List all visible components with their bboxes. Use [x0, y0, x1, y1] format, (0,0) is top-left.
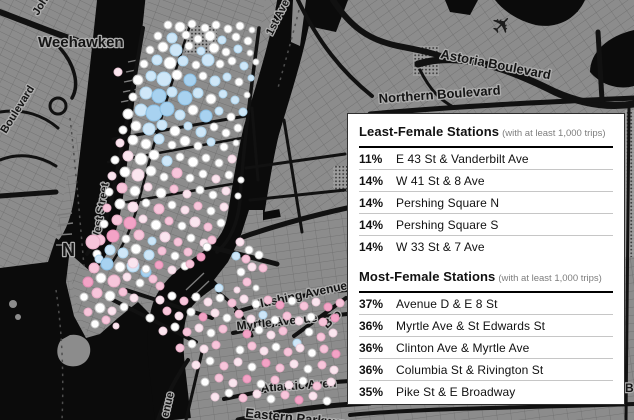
station-pct: 37%	[359, 297, 396, 311]
station-dot	[290, 360, 298, 368]
section-subtitle: (with at least 1,000 trips)	[502, 128, 606, 139]
station-dot	[152, 55, 162, 65]
station-dot	[248, 75, 254, 81]
station-dot	[222, 48, 230, 56]
station-dot	[199, 72, 207, 80]
station-dot	[86, 235, 100, 249]
station-dot	[323, 397, 331, 405]
station-dot	[211, 309, 219, 317]
station-dot	[223, 73, 231, 81]
station-dot	[232, 252, 240, 260]
station-dot	[139, 215, 147, 223]
station-row: 14%Pershing Square N	[359, 191, 613, 213]
station-dot	[215, 374, 223, 382]
station-dot	[154, 204, 164, 214]
station-dot	[186, 260, 194, 268]
station-dot	[201, 378, 209, 386]
station-dot	[249, 27, 255, 33]
station-dot	[176, 344, 184, 352]
station-dot	[220, 203, 228, 211]
station-dot	[234, 124, 242, 132]
station-dot	[146, 46, 154, 54]
station-name: Pershing Square N	[396, 196, 613, 210]
station-row: 14%W 33 St & 7 Ave	[359, 235, 613, 257]
station-dot	[211, 393, 219, 401]
station-dot	[168, 292, 176, 300]
station-dot	[318, 361, 326, 369]
station-dot	[199, 170, 207, 178]
station-dot	[148, 237, 156, 245]
station-dot	[307, 313, 315, 321]
station-dot	[168, 201, 176, 209]
station-row: 35%Pike St & E Broadway	[359, 380, 613, 402]
station-dot	[228, 57, 236, 65]
station-dot	[252, 300, 260, 308]
station-dot	[194, 202, 202, 210]
station-dot	[237, 268, 245, 276]
station-dot	[229, 379, 237, 387]
station-dot	[288, 297, 296, 305]
station-row: 36%Columbia St & Rivington St	[359, 358, 613, 380]
station-dot	[216, 60, 224, 68]
panel-section-0: Least-Female Stations(with at least 1,00…	[348, 114, 624, 259]
station-dot	[95, 303, 105, 313]
station-dot	[175, 312, 183, 320]
station-name: E 43 St & Vanderbilt Ave	[396, 152, 613, 166]
station-dot	[84, 308, 92, 316]
station-dot	[149, 275, 157, 283]
station-dot	[244, 37, 252, 45]
station-dot	[212, 21, 220, 29]
station-pct: 14%	[359, 240, 396, 254]
station-dot	[236, 22, 244, 30]
station-dot	[128, 258, 138, 268]
station-rows: 11%E 43 St & Vanderbilt Ave14%W 41 St & …	[359, 148, 613, 257]
station-dot	[247, 50, 253, 56]
station-dot	[159, 327, 167, 335]
station-dot	[295, 317, 303, 325]
station-name: W 41 St & 8 Ave	[396, 174, 613, 188]
station-dot	[204, 298, 212, 306]
station-dot	[181, 206, 189, 214]
station-dot	[118, 248, 128, 258]
station-dot	[299, 377, 307, 385]
station-dot	[255, 326, 263, 334]
station-pct: 14%	[359, 196, 396, 210]
station-dot	[164, 57, 176, 69]
station-dot	[225, 171, 233, 179]
map-label: Weehawken	[38, 34, 124, 51]
station-dot	[185, 42, 193, 50]
station-dot	[207, 138, 215, 146]
station-dot	[192, 61, 200, 69]
station-dot	[116, 139, 124, 147]
station-dot	[204, 223, 212, 231]
station-dot	[220, 362, 228, 370]
station-dot	[114, 68, 122, 76]
station-dot	[175, 110, 185, 120]
station-dot	[264, 296, 272, 304]
station-dot	[140, 87, 152, 99]
station-dot	[197, 253, 205, 261]
station-dot	[96, 273, 106, 283]
station-dot	[217, 219, 225, 227]
station-pct: 35%	[359, 385, 396, 399]
station-dot	[201, 24, 209, 32]
station-dot	[271, 376, 279, 384]
station-dot	[123, 151, 133, 161]
station-dot	[330, 366, 338, 374]
station-pct: 36%	[359, 341, 396, 355]
station-dot	[304, 365, 312, 373]
section-header: Most-Female Stations(with at least 1,000…	[359, 268, 613, 293]
station-pct: 14%	[359, 174, 396, 188]
station-dot	[205, 31, 215, 41]
station-dot	[320, 345, 328, 353]
station-dot	[107, 230, 119, 242]
station-dot	[174, 238, 182, 246]
station-dot	[228, 155, 236, 163]
station-dot	[105, 188, 113, 196]
station-dot	[149, 150, 159, 160]
station-dot	[236, 346, 244, 354]
station-dot	[119, 288, 127, 296]
station-dot	[276, 364, 284, 372]
station-dot	[178, 91, 192, 105]
station-dot	[144, 183, 152, 191]
station-dot	[83, 277, 93, 287]
station-dot	[122, 235, 130, 243]
station-dot	[209, 43, 219, 53]
station-dot	[182, 31, 190, 39]
station-dot	[188, 340, 196, 348]
station-dot	[219, 90, 227, 98]
station-dot	[146, 314, 154, 322]
station-dot	[279, 327, 287, 335]
station-dot	[331, 314, 339, 322]
station-dot	[188, 157, 198, 167]
stations-panel: Least-Female Stations(with at least 1,00…	[347, 113, 625, 405]
station-dot	[168, 266, 176, 274]
station-dot	[210, 123, 218, 131]
station-dot	[146, 105, 162, 121]
station-dot	[231, 96, 239, 104]
map-label: B	[625, 381, 634, 395]
station-dot	[296, 344, 304, 352]
station-dot	[91, 320, 99, 328]
station-dot	[247, 315, 255, 323]
station-dot	[160, 173, 168, 181]
station-dot	[285, 381, 293, 389]
station-dot	[215, 159, 223, 167]
station-dot	[113, 323, 119, 329]
station-dot	[130, 186, 140, 196]
station-dot	[154, 134, 164, 144]
station-dot	[220, 143, 228, 151]
station-name: Clinton Ave & Myrtle Ave	[396, 341, 613, 355]
station-dot	[242, 255, 250, 263]
station-dot	[212, 341, 220, 349]
station-dot	[203, 243, 211, 251]
station-dot	[259, 311, 267, 319]
station-dot	[239, 108, 247, 116]
station-dot	[336, 299, 344, 307]
station-dot	[157, 120, 167, 130]
station-dot	[144, 250, 154, 260]
station-dot	[234, 358, 242, 366]
station-dot	[218, 36, 226, 44]
station-dot	[184, 74, 196, 86]
station-dot	[267, 395, 275, 403]
station-dot	[243, 375, 251, 383]
station-dot	[243, 278, 251, 286]
station-dot	[146, 71, 156, 81]
station-dot	[167, 33, 177, 43]
station-dot	[194, 142, 202, 150]
station-dot	[192, 293, 200, 301]
station-dot	[146, 166, 156, 176]
station-row: 37%Avenue D & E 8 St	[359, 293, 613, 314]
station-dot	[188, 105, 198, 115]
station-dot	[224, 25, 232, 33]
station-dot	[141, 139, 151, 149]
station-dot	[184, 122, 192, 130]
station-dot	[319, 318, 327, 326]
station-dot	[188, 20, 196, 28]
station-dot	[267, 331, 275, 339]
station-dot	[170, 185, 178, 193]
station-dot	[112, 215, 122, 225]
station-dot	[111, 156, 119, 164]
station-dot	[276, 301, 284, 309]
station-dot	[313, 382, 321, 390]
station-dot	[234, 287, 240, 293]
section-header: Least-Female Stations(with at least 1,00…	[359, 123, 613, 148]
station-dot	[156, 282, 164, 290]
station-dot	[209, 191, 217, 199]
station-dot	[178, 222, 186, 230]
station-dot	[234, 45, 242, 53]
station-dot	[142, 265, 150, 273]
station-dot	[215, 107, 223, 115]
station-dot	[210, 76, 220, 86]
station-row: 36%Myrtle Ave & St Edwards St	[359, 314, 613, 336]
station-dot	[120, 303, 128, 311]
station-row: 14%Pershing Square S	[359, 213, 613, 235]
station-dot	[128, 202, 138, 212]
station-dot	[128, 135, 138, 145]
station-dot	[260, 347, 268, 355]
station-dot	[196, 186, 204, 194]
station-dot	[134, 230, 144, 240]
station-dot	[103, 204, 111, 212]
station-dot	[206, 357, 214, 365]
station-dot	[187, 234, 195, 242]
station-dot	[135, 153, 147, 165]
station-dot	[244, 92, 250, 98]
station-dot	[283, 312, 291, 320]
station-dot	[101, 258, 113, 270]
station-pct: 11%	[359, 152, 396, 166]
station-dot	[235, 193, 241, 199]
station-name: W 33 St & 7 Ave	[396, 240, 613, 254]
station-dot	[197, 47, 205, 55]
station-dot	[281, 391, 289, 399]
station-dot	[202, 154, 210, 162]
station-dot	[158, 247, 166, 255]
station-dot	[245, 246, 253, 254]
station-dot	[108, 275, 120, 287]
station-dot	[165, 217, 173, 225]
station-dot	[327, 378, 335, 386]
section-subtitle: (with at least 1,000 trips)	[498, 273, 602, 284]
station-dot	[142, 199, 150, 207]
station-dot	[80, 293, 88, 301]
station-dot	[255, 251, 263, 259]
station-dot	[212, 175, 220, 183]
station-dot	[163, 307, 171, 315]
station-dot	[199, 313, 207, 321]
station-dot	[136, 279, 144, 287]
map-screenshot: WeehawkenJohBoulevard1st AveAstoria Boul…	[0, 0, 634, 420]
station-dot	[132, 169, 144, 181]
station-dot	[308, 349, 316, 357]
station-dot	[195, 324, 203, 332]
station-dot	[300, 302, 308, 310]
station-dot	[329, 329, 337, 337]
station-dot	[180, 136, 190, 146]
station-dot	[129, 93, 137, 101]
section-title: Least-Female Stations	[359, 124, 499, 139]
station-dot	[259, 264, 267, 272]
station-dot	[232, 33, 240, 41]
station-dot	[238, 177, 244, 183]
station-dot	[171, 323, 179, 331]
panel-section-1: Most-Female Stations(with at least 1,000…	[348, 259, 624, 404]
station-dot	[131, 244, 141, 254]
station-dot	[187, 308, 195, 316]
station-dot	[176, 153, 184, 161]
station-dot	[190, 217, 200, 227]
station-dot	[235, 310, 243, 318]
station-dot	[239, 394, 247, 402]
station-dot	[140, 60, 148, 68]
station-dot	[120, 167, 130, 177]
station-name: Pike St & E Broadway	[396, 385, 613, 399]
station-dot	[108, 172, 116, 180]
station-dot	[194, 35, 202, 43]
station-dot	[162, 156, 172, 166]
station-dot	[168, 141, 176, 149]
station-dot	[228, 299, 236, 307]
station-dot	[216, 294, 224, 302]
station-pct: 14%	[359, 218, 396, 232]
station-dot	[236, 238, 244, 246]
station-dot	[123, 109, 133, 119]
station-dot	[124, 217, 136, 229]
station-dot	[170, 126, 180, 136]
station-dot	[123, 273, 131, 281]
station-dot	[200, 110, 212, 122]
station-dot	[135, 104, 147, 116]
station-dot	[222, 129, 230, 137]
station-dot	[243, 330, 251, 338]
station-dot	[222, 187, 230, 195]
station-dot	[312, 298, 320, 306]
station-dot	[130, 294, 138, 302]
station-name: Myrtle Ave & St Edwards St	[396, 319, 613, 333]
section-title: Most-Female Stations	[359, 269, 495, 284]
station-rows: 37%Avenue D & E 8 St36%Myrtle Ave & St E…	[359, 293, 613, 402]
station-dot	[119, 126, 127, 134]
station-dot	[219, 325, 227, 333]
station-dot	[227, 113, 235, 121]
station-dot	[200, 345, 208, 353]
station-dot	[192, 361, 200, 369]
station-dot	[157, 72, 171, 86]
station-dot	[105, 291, 115, 301]
station-dot	[332, 350, 340, 358]
station-dot	[248, 342, 256, 350]
station-pct: 36%	[359, 319, 396, 333]
station-dot	[108, 307, 116, 315]
station-dot	[156, 188, 166, 198]
station-dot	[253, 285, 259, 291]
station-dot	[117, 183, 127, 193]
station-dot	[262, 359, 270, 367]
station-name: Columbia St & Rivington St	[396, 363, 613, 377]
station-dot	[89, 263, 99, 273]
station-dot	[100, 220, 108, 228]
station-dot	[158, 42, 168, 52]
station-dot	[160, 232, 170, 242]
station-dot	[248, 363, 256, 371]
station-dot	[284, 348, 292, 356]
station-dot	[183, 190, 191, 198]
station-dot	[295, 396, 303, 404]
station-dot	[160, 102, 174, 116]
station-row: 14%W 41 St & 8 Ave	[359, 169, 613, 191]
station-dot	[215, 284, 223, 292]
station-dot	[172, 70, 182, 80]
station-dot	[115, 199, 125, 209]
station-dot	[156, 296, 164, 304]
station-dot	[180, 297, 188, 305]
station-dot	[240, 295, 248, 303]
station-dot	[175, 22, 185, 32]
station-dot	[208, 236, 216, 244]
station-dot	[206, 94, 216, 104]
station-dot	[272, 343, 280, 351]
station-dot	[240, 62, 248, 70]
station-dot	[305, 328, 313, 336]
station-dot	[196, 127, 206, 137]
station-row: 11%E 43 St & Vanderbilt Ave	[359, 148, 613, 169]
station-dot	[271, 316, 279, 324]
station-dot	[257, 380, 265, 388]
station-dot	[172, 168, 182, 178]
station-dot	[186, 174, 194, 182]
station-dot	[115, 262, 125, 272]
station-dot	[171, 252, 179, 260]
station-dot	[178, 56, 188, 66]
station-dot	[152, 89, 166, 103]
station-dot	[164, 21, 172, 29]
station-dot	[225, 389, 233, 397]
station-dot	[102, 316, 110, 324]
station-dot	[309, 392, 317, 400]
station-dot	[151, 220, 161, 230]
